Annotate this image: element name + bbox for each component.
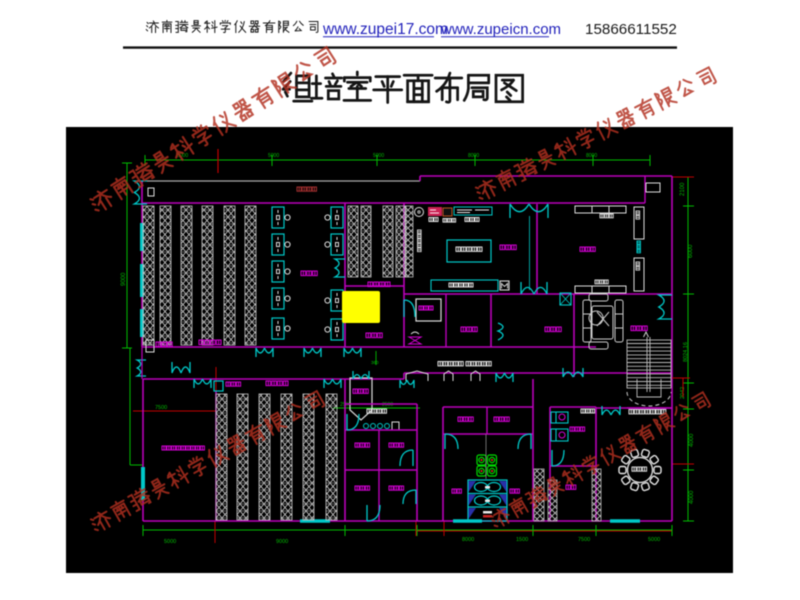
svg-text:2500: 2500: [382, 402, 393, 408]
svg-text:www.zupeicn.com: www.zupeicn.com: [440, 21, 561, 38]
svg-text:4000: 4000: [689, 433, 695, 447]
svg-text:9000: 9000: [121, 272, 127, 286]
svg-text:6000: 6000: [688, 244, 694, 258]
svg-text:5000: 5000: [164, 539, 176, 545]
svg-text:www.zupei17.com: www.zupei17.com: [322, 21, 448, 38]
svg-text:8000: 8000: [468, 153, 479, 159]
svg-text:8024.16: 8024.16: [683, 342, 689, 362]
svg-text:5000: 5000: [373, 153, 384, 159]
svg-text:5000: 5000: [648, 537, 660, 543]
svg-text:1500: 1500: [516, 537, 528, 543]
svg-text:4000: 4000: [689, 490, 695, 504]
svg-text:8000: 8000: [462, 537, 474, 543]
svg-text:8000: 8000: [586, 153, 597, 159]
svg-text:7500: 7500: [578, 537, 590, 543]
svg-text:9000: 9000: [276, 539, 288, 545]
svg-text:15866611552: 15866611552: [585, 21, 677, 38]
svg-text:360: 360: [371, 360, 379, 365]
svg-text:5000: 5000: [268, 153, 279, 159]
svg-text:2100: 2100: [680, 182, 686, 196]
svg-text:7500: 7500: [155, 405, 167, 411]
